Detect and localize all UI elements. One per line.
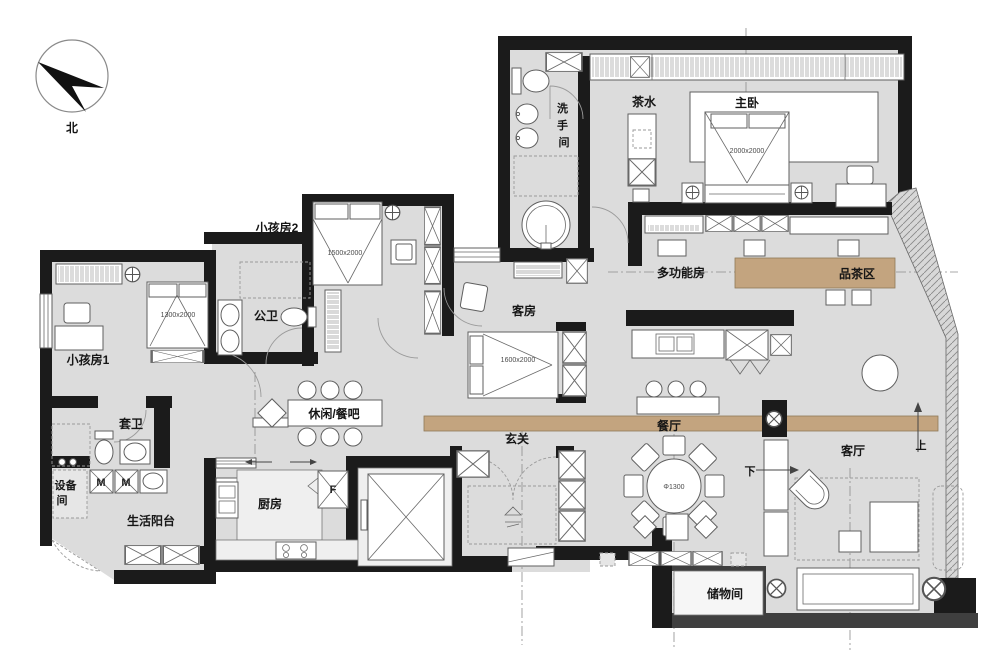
master-bedroom — [590, 54, 904, 207]
desk — [391, 240, 416, 264]
dim-guest-bed: 1600x2000 — [501, 357, 536, 364]
nightstand — [682, 183, 703, 203]
label-leisure-bar: 休闲/餐吧 — [307, 406, 359, 421]
dim-kids2-bed: 1500x2000 — [328, 250, 363, 257]
window-guest-top — [454, 248, 500, 262]
label-foyer: 玄关 — [505, 431, 529, 446]
toilet — [281, 307, 316, 327]
dim-kids1-bed: 1300x2000 — [161, 312, 196, 319]
label-tea-area: 品茶区 — [839, 266, 875, 281]
label-dining-room: 餐厅 — [657, 418, 681, 433]
label-washroom: 洗 手 间 — [557, 101, 571, 149]
elevator — [358, 468, 452, 566]
label-living-room: 客厅 — [840, 443, 865, 458]
marker-fridge: F — [330, 484, 337, 496]
floor-plan-page: 北 洗 手 间 茶水 主卧 2000x2000 小孩房2 1500x2000 多… — [0, 0, 1000, 652]
nightstand — [791, 183, 812, 203]
coffee-table — [870, 502, 918, 552]
label-ensuite-bath: 套卫 — [118, 416, 143, 431]
bathtub — [522, 201, 570, 249]
round-table — [862, 355, 898, 391]
floor-plan: 北 洗 手 间 茶水 主卧 2000x2000 小孩房2 1500x2000 多… — [0, 0, 1000, 652]
label-kitchen: 厨房 — [258, 496, 282, 511]
label-kids-room-2: 小孩房2 — [256, 220, 299, 235]
toilet — [512, 68, 549, 94]
bed-guest — [468, 332, 558, 398]
entry-threshold — [508, 548, 554, 566]
label-tea-station: 茶水 — [631, 94, 657, 109]
bed-master — [705, 112, 789, 203]
label-guest-room: 客房 — [511, 303, 536, 318]
sink — [516, 128, 538, 148]
sink — [218, 300, 242, 355]
sink — [120, 440, 150, 464]
ladder-rack — [325, 290, 341, 352]
label-storage: 储物间 — [707, 586, 743, 601]
dim-master-bed: 2000x2000 — [730, 148, 765, 155]
wardrobe-strip — [56, 264, 122, 284]
marker-down: 下 — [745, 465, 756, 478]
sink — [140, 470, 167, 493]
stove — [276, 542, 316, 559]
bed-kids2 — [313, 202, 382, 285]
window-kids1-left — [40, 294, 52, 348]
console-south — [634, 514, 718, 540]
cabinet-row — [645, 216, 888, 234]
compass-label: 北 — [66, 120, 78, 135]
kitchen-sink — [216, 482, 238, 518]
sofa — [797, 568, 919, 610]
label-service-balcony: 生活阳台 — [127, 513, 175, 528]
label-master-bedroom: 主卧 — [735, 95, 759, 110]
compass-icon — [36, 40, 108, 112]
marker-up: 上 — [916, 438, 927, 452]
sink — [516, 104, 538, 124]
label-multi-function: 多功能房 — [657, 265, 705, 280]
label-public-bath: 公卫 — [254, 309, 278, 323]
marker-washer-1: M — [96, 477, 105, 489]
wardrobe-strip — [590, 54, 904, 80]
label-kids-room-1: 小孩房1 — [67, 352, 110, 367]
dim-dining-table: Φ1300 — [663, 484, 684, 491]
marker-washer-2: M — [121, 477, 130, 489]
side-table — [839, 531, 861, 552]
toilet — [95, 431, 113, 464]
